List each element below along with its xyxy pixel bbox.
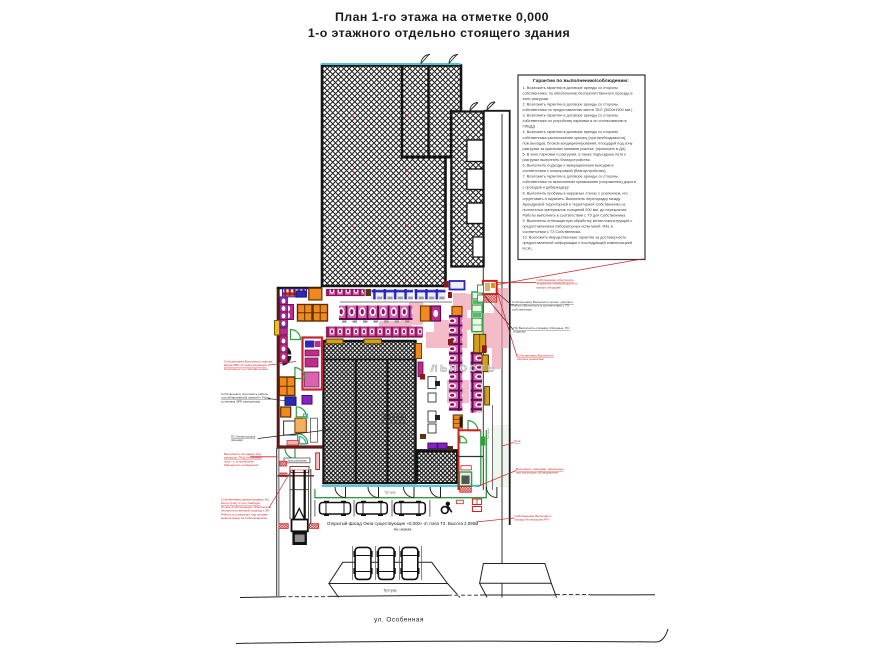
svg-text:10. Возложить имущественные га: 10. Возложить имущественные гарантии за … [523,236,627,240]
svg-text:Не низкая: Не низкая [394,528,412,532]
svg-text:с проездов и дебаркадеру: с проездов и дебаркадеру [523,186,569,190]
svg-text:крыше обходума: крыше обходума [537,285,561,289]
svg-text:ГИБДД: ГИБДД [523,125,536,129]
svg-text:Зона разгрузки: Зона разгрузки [287,459,307,463]
svg-text:собственника расположение крыл: собственника расположение крылец (при не… [523,136,627,140]
svg-text:соответствии с планировкой (бл: соответствии с планировкой (благоустройс… [523,169,607,173]
svg-text:разгрузки за красными линиями: разгрузки за красными линиями участка. (… [523,147,627,151]
svg-text:ул. Особенная: ул. Особенная [374,616,424,624]
svg-text:при раскладке оборудования: при раскладке оборудования [516,471,558,475]
svg-text:вывоза фонд за Собственников: вывоза фонд за Собственников [221,516,267,520]
svg-text:Арендуемой территорией и терри: Арендуемой территорией и территорией Соб… [523,202,626,206]
svg-text:проема): проема) [231,438,243,442]
svg-text:предоставлением лабораторных и: предоставлением лабораторных испытаний. … [523,225,613,229]
svg-text:Тротуар: Тротуар [486,428,490,439]
svg-text:Открытый фасад Окна существую: Открытый фасад Окна существующие «0,000»… [327,521,478,526]
svg-text:ЛЬНОСТЬ: ЛЬНОСТЬ [431,363,498,374]
svg-text:РСР): РСР) [523,247,533,251]
svg-text:безопасность и приобретению: безопасность и приобретению [224,367,268,371]
svg-text:собственника по устройству пар: собственника по устройству парковки и по… [523,119,627,123]
svg-text:1. Возложить гарантии в догово: 1. Возложить гарантии в договоре аренды … [523,86,619,90]
svg-text:соответствии с ТЗ Собственника: соответствии с ТЗ Собственника. [523,230,582,234]
svg-text:Тротуар: Тротуар [383,589,396,593]
svg-text:барьерного ограждения: барьерного ограждения [224,463,259,467]
svg-text:огрунтовать и окрасить. Выполн: огрунтовать и окрасить. Выполнить перего… [523,197,621,201]
svg-text:5. В зоне парковки и разгрузки: 5. В зоне парковки и разгрузки, а также … [523,152,627,156]
svg-text:собственника по выполнению при: собственника по выполнению примыкания (с… [523,180,636,184]
svg-text:План 1-го этажа на отметке 0,0: План 1-го этажа на отметке 0,000 [335,10,549,24]
svg-text:Работы выполнить в соответстви: Работы выполнить в соответствии с ТЗ для… [523,214,627,218]
svg-text:2. Возложить гарантии в догово: 2. Возложить гарантии в договоре аренды … [523,102,619,106]
svg-text:установка ЭРК арендатора: установка ЭРК арендатора [221,399,260,403]
svg-text:9. Выполнить огнезащитную обра: 9. Выполнить огнезащитную обработку мета… [523,219,633,223]
svg-text:зоне разгрузки: зоне разгрузки [523,97,549,101]
svg-text:1-о этажного отдельно стоящего: 1-о этажного отдельно стоящего здания [308,26,570,40]
svg-text:Гарантии по выполнению/соблюде: Гарантии по выполнению/соблюдению: [533,77,629,84]
svg-text:подушку: подушку [514,330,527,334]
svg-text:3. Возложить гарантии в догово: 3. Возложить гарантии в договоре аренды … [523,114,619,118]
svg-text:ограду без выгрузки РН: ограду без выгрузки РН [515,518,549,522]
svg-text:Тротуар: Тротуар [384,490,396,494]
svg-text:полнотелых материалов толщиной: полнотелых материалов толщиной 200 мм. д… [523,208,628,212]
svg-text:собственника по предоставлению: собственника по предоставлению места ТБО… [523,108,634,112]
svg-text:сделать демонтаж: сделать демонтаж [517,357,545,361]
svg-text:собственника, по обеспечению б: собственника, по обеспечению беспрепятст… [523,91,633,95]
svg-text:8. Выполнить пробивы в наружны: 8. Выполнить пробивы в наружных стенах с… [523,191,628,195]
svg-text:6. Выполнить подходы к эвакуац: 6. Выполнить подходы к эвакуационным вых… [523,164,614,168]
svg-text:разгрузке выполнить благоустро: разгрузке выполнить благоустройство. [523,158,591,162]
svg-text:7. Возложить гарантии в догово: 7. Возложить гарантии в договоре аренды … [523,175,619,179]
svg-text:собственника.: собственника. [512,307,533,311]
svg-text:пож.выходов, блоков кондициони: пож.выходов, блоков кондиционирования, п… [523,141,633,145]
svg-text:4. Возложить гарантии в догово: 4. Возложить гарантии в договоре аренды … [523,130,619,134]
svg-text:Урна: Урна [514,439,521,443]
svg-text:предоставленной информации с п: предоставленной информации с последующей… [523,241,633,245]
